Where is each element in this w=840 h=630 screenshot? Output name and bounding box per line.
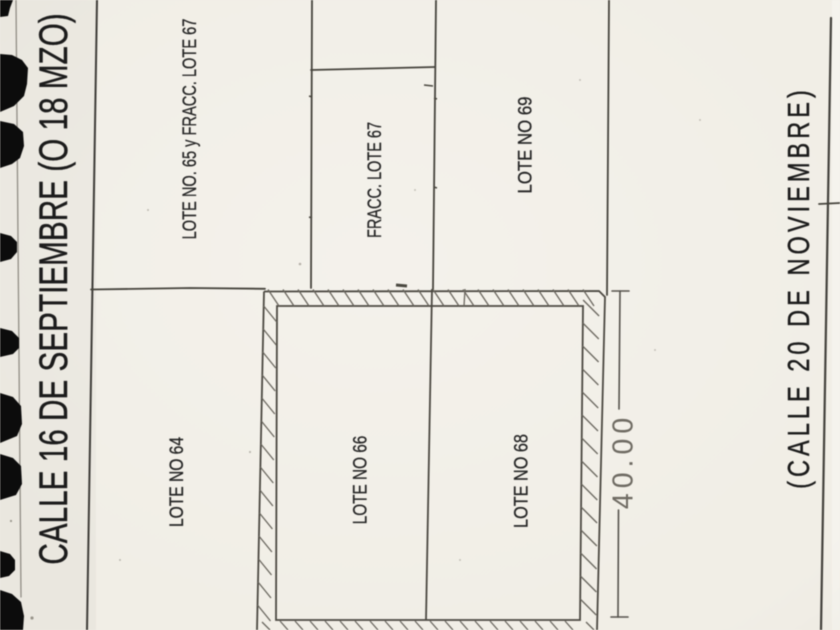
svg-text:LOTE NO 66: LOTE NO 66: [349, 436, 371, 525]
svg-text:CALLE 16 DE SEPTIEMBRE (O 18 M: CALLE 16 DE SEPTIEMBRE (O 18 MZO): [32, 13, 76, 564]
svg-text:40.00: 40.00: [608, 413, 640, 509]
svg-text:LOTE NO 68: LOTE NO 68: [510, 434, 531, 528]
svg-text:LOTE NO 69: LOTE NO 69: [514, 96, 535, 193]
svg-text:LOTE NO. 65 y FRACC. LOTE 67: LOTE NO. 65 y FRACC. LOTE 67: [179, 19, 200, 240]
svg-text:(CALLE 20 DE NOVIEMBRE): (CALLE 20 DE NOVIEMBRE): [781, 86, 816, 489]
svg-text:LOTE NO 64: LOTE NO 64: [166, 437, 188, 527]
svg-text:FRACC. LOTE 67: FRACC. LOTE 67: [364, 122, 385, 238]
